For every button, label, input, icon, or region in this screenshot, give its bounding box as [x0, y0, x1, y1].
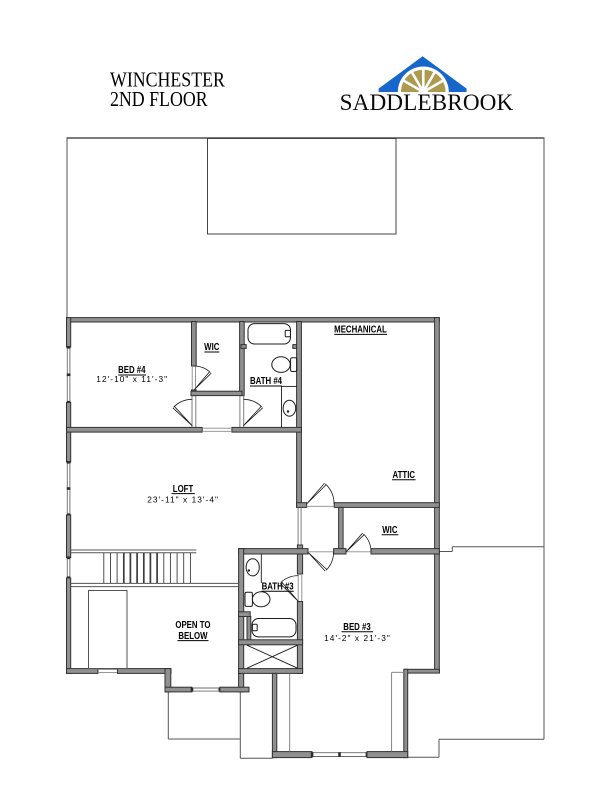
svg-text:23'-11" x 13'-4": 23'-11" x 13'-4" — [147, 495, 219, 505]
svg-text:ATTIC: ATTIC — [393, 469, 416, 480]
svg-text:LOFT: LOFT — [173, 483, 194, 494]
svg-text:BATH #3: BATH #3 — [262, 581, 294, 592]
svg-text:WIC: WIC — [382, 524, 398, 535]
svg-text:BATH #4: BATH #4 — [250, 375, 282, 386]
svg-text:SADDLEBROOK: SADDLEBROOK — [340, 90, 514, 116]
svg-text:WIC: WIC — [204, 341, 220, 352]
svg-text:BELOW: BELOW — [178, 630, 208, 641]
svg-text:2ND FLOOR: 2ND FLOOR — [110, 89, 208, 112]
svg-text:OPEN TO: OPEN TO — [175, 619, 210, 630]
svg-text:BED #3: BED #3 — [343, 621, 370, 632]
svg-text:12'-10" x 11'-3": 12'-10" x 11'-3" — [96, 374, 168, 384]
svg-text:14'-2" x 21'-3": 14'-2" x 21'-3" — [324, 633, 391, 643]
svg-text:MECHANICAL: MECHANICAL — [334, 324, 387, 335]
